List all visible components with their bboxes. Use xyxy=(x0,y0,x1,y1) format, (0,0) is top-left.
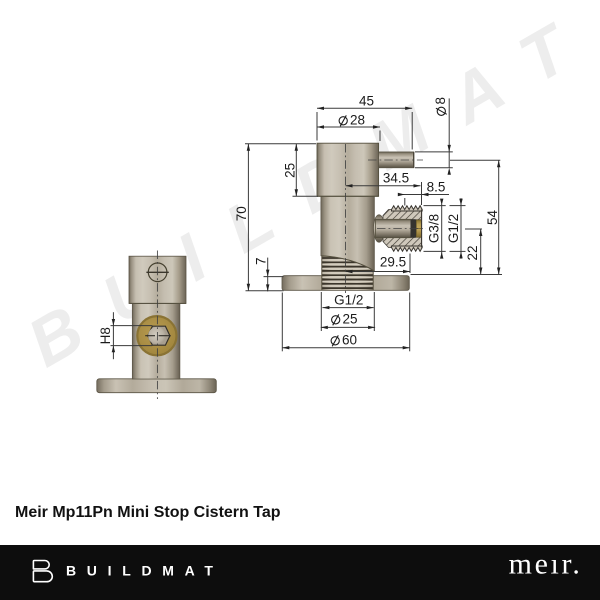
svg-text:8.5: 8.5 xyxy=(427,180,446,195)
svg-text:28: 28 xyxy=(350,113,365,128)
svg-text:60: 60 xyxy=(342,333,357,348)
svg-text:34.5: 34.5 xyxy=(383,171,409,186)
svg-text:7: 7 xyxy=(254,257,269,265)
svg-text:25: 25 xyxy=(343,312,358,327)
svg-text:G3/8: G3/8 xyxy=(426,214,441,243)
svg-text:45: 45 xyxy=(359,94,374,109)
svg-text:BUILDMAT: BUILDMAT xyxy=(66,563,224,579)
svg-text:G1/2: G1/2 xyxy=(446,214,461,243)
svg-text:54: 54 xyxy=(485,210,500,226)
svg-text:8: 8 xyxy=(433,97,448,105)
svg-text:H8: H8 xyxy=(98,327,113,344)
svg-text:22: 22 xyxy=(465,245,480,260)
svg-text:Meir Mp11Pn Mini Stop Cistern: Meir Mp11Pn Mini Stop Cistern Tap xyxy=(15,504,281,521)
svg-text:25: 25 xyxy=(283,163,298,178)
svg-text:29.5: 29.5 xyxy=(380,255,406,270)
svg-text:70: 70 xyxy=(234,206,249,221)
svg-text:G1/2: G1/2 xyxy=(334,293,363,308)
svg-text:meır.: meır. xyxy=(509,548,583,581)
